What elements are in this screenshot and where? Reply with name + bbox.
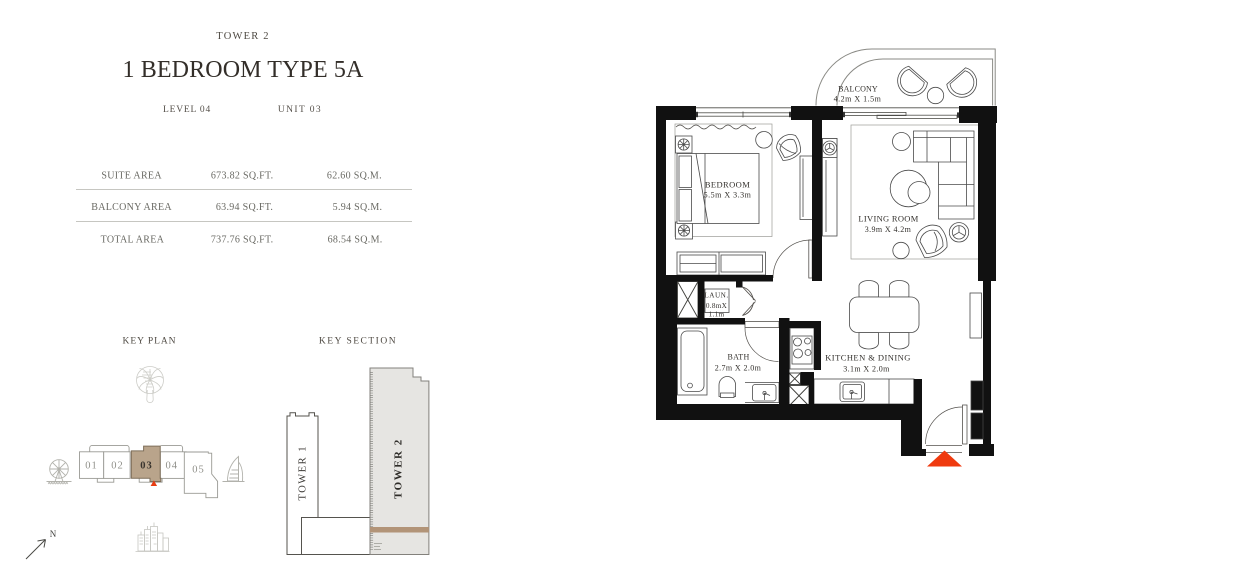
svg-text:03: 03 bbox=[140, 461, 153, 472]
svg-text:N: N bbox=[50, 529, 57, 539]
svg-text:2.7m X 2.0m: 2.7m X 2.0m bbox=[715, 364, 762, 373]
svg-text:1.1m: 1.1m bbox=[709, 311, 725, 319]
svg-text:BALCONY AREA: BALCONY AREA bbox=[91, 202, 172, 213]
svg-text:1 BEDROOM TYPE 5A: 1 BEDROOM TYPE 5A bbox=[123, 57, 364, 83]
svg-text:5.94 SQ.M.: 5.94 SQ.M. bbox=[333, 202, 383, 213]
svg-text:BEDROOM: BEDROOM bbox=[705, 180, 750, 190]
svg-text:KEY PLAN: KEY PLAN bbox=[123, 337, 177, 347]
svg-text:KITCHEN & DINING: KITCHEN & DINING bbox=[825, 353, 911, 363]
svg-text:673.82 SQ.FT.: 673.82 SQ.FT. bbox=[211, 171, 274, 182]
svg-text:3.9m X 4.2m: 3.9m X 4.2m bbox=[865, 225, 912, 234]
svg-text:5.5m X 3.3m: 5.5m X 3.3m bbox=[704, 191, 752, 200]
svg-text:63.94 SQ.FT.: 63.94 SQ.FT. bbox=[216, 202, 273, 213]
svg-text:TOWER 2: TOWER 2 bbox=[216, 31, 269, 42]
svg-text:BALCONY: BALCONY bbox=[838, 85, 878, 94]
svg-text:LIVING ROOM: LIVING ROOM bbox=[858, 214, 918, 224]
svg-text:TOWER 2: TOWER 2 bbox=[393, 438, 405, 499]
svg-text:KEY SECTION: KEY SECTION bbox=[319, 337, 397, 347]
svg-text:01: 01 bbox=[85, 461, 98, 472]
svg-text:737.76 SQ.FT.: 737.76 SQ.FT. bbox=[211, 235, 274, 246]
svg-text:68.54 SQ.M.: 68.54 SQ.M. bbox=[328, 235, 383, 246]
svg-text:UNIT 03: UNIT 03 bbox=[278, 105, 322, 115]
svg-text:SUITE AREA: SUITE AREA bbox=[101, 171, 162, 182]
svg-text:BATH: BATH bbox=[727, 353, 749, 362]
svg-text:05: 05 bbox=[192, 465, 205, 476]
svg-text:0.8mX: 0.8mX bbox=[706, 302, 728, 310]
svg-text:4.2m X 1.5m: 4.2m X 1.5m bbox=[834, 95, 882, 104]
svg-text:LAUN.: LAUN. bbox=[704, 292, 728, 300]
svg-text:TOWER 1: TOWER 1 bbox=[298, 445, 309, 501]
svg-text:02: 02 bbox=[111, 461, 124, 472]
svg-text:62.60 SQ.M.: 62.60 SQ.M. bbox=[327, 171, 382, 182]
svg-text:TOTAL AREA: TOTAL AREA bbox=[101, 235, 165, 246]
svg-text:3.1m X 2.0m: 3.1m X 2.0m bbox=[843, 365, 890, 374]
svg-text:04: 04 bbox=[166, 461, 179, 472]
svg-text:LEVEL 04: LEVEL 04 bbox=[163, 105, 211, 115]
